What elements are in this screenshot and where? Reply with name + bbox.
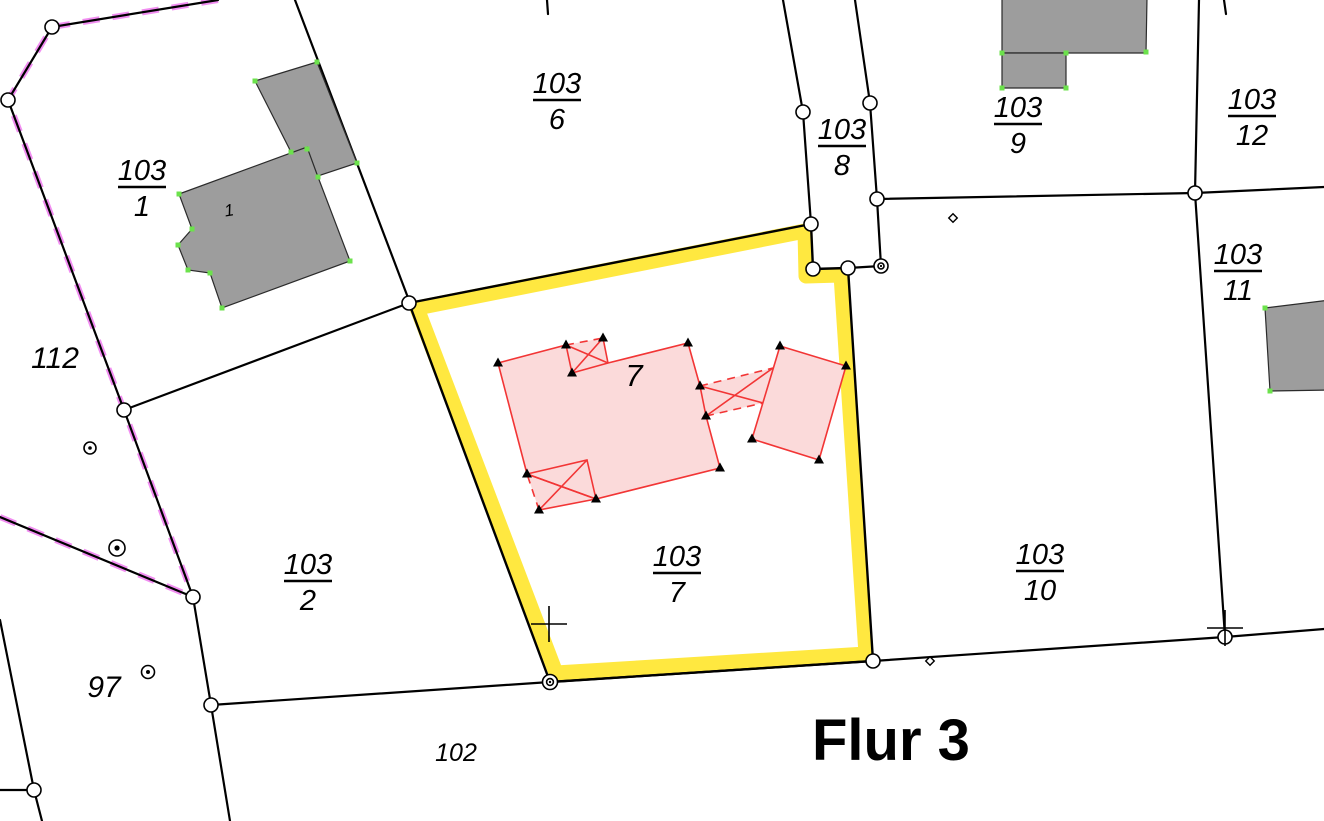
cadastral-map-canvas[interactable]: 103 1 103 6 103 8 103 9 103 12 103 11 10… — [0, 0, 1324, 821]
vertex-marker — [806, 262, 820, 276]
green-dot-marker — [1263, 306, 1268, 311]
parcel-number-denominator: 8 — [834, 150, 850, 182]
boundary-line-103-1-south — [124, 303, 409, 410]
parcel-number-numerator: 103 — [1016, 539, 1064, 571]
vertex-marker — [870, 192, 884, 206]
parcel-number-denominator: 9 — [1010, 128, 1026, 160]
parcel-number-denominator: 11 — [1223, 275, 1253, 307]
vertex-marker — [27, 783, 41, 797]
green-dot-marker — [208, 271, 213, 276]
green-dot-marker — [289, 150, 294, 155]
building-103-11 — [1265, 300, 1324, 391]
vertex-marker — [796, 105, 810, 119]
parcel-number-numerator: 103 — [118, 155, 166, 187]
green-dot-marker — [1000, 86, 1005, 91]
green-dot-marker — [355, 161, 360, 166]
parcel-label-103-9: 103 9 — [994, 92, 1042, 160]
parcel-label-103-12: 103 12 — [1228, 84, 1276, 152]
parcel-label-102: 102 — [435, 739, 477, 767]
green-dot-marker — [1064, 51, 1069, 56]
parcel-label-103-6: 103 6 — [533, 68, 581, 136]
green-dot-marker — [316, 175, 321, 180]
vertex-marker — [866, 654, 880, 668]
cross-marker — [1207, 610, 1243, 646]
parcel-label-103-11: 103 11 — [1214, 239, 1262, 307]
parcel-number-denominator: 6 — [549, 104, 566, 136]
parcel-label-103-1: 103 1 — [118, 155, 166, 223]
green-dot-marker — [1064, 86, 1069, 91]
house-number-7: 7 — [625, 358, 644, 393]
vertex-marker — [186, 590, 200, 604]
parcel-label-103-8: 103 8 — [818, 114, 866, 182]
green-dot-marker — [186, 268, 191, 273]
parcel-label-97: 97 — [87, 671, 122, 704]
parcel-number-numerator: 103 — [1214, 239, 1262, 271]
green-dot-marker — [1000, 51, 1005, 56]
parcel-number-denominator: 7 — [669, 577, 687, 609]
vertex-marker — [1188, 186, 1202, 200]
boundary-line-103-9-south — [877, 187, 1324, 199]
vertex-marker — [804, 217, 818, 231]
parcel-number-numerator: 103 — [994, 92, 1042, 124]
diamond-marker — [949, 214, 957, 222]
vertex-marker — [45, 20, 59, 34]
edited-boundary-purple-dashes — [0, 0, 218, 597]
parcel-number-denominator: 12 — [1236, 120, 1268, 152]
circled-dot-marker — [543, 675, 558, 690]
green-dot-marker — [1268, 389, 1273, 394]
green-dot-marker — [176, 243, 181, 248]
parcel-label-112: 112 — [31, 342, 79, 375]
parcel-number-numerator: 103 — [653, 541, 701, 573]
green-dot-marker — [220, 306, 225, 311]
minor-point-markers — [926, 214, 957, 665]
vertex-marker — [204, 698, 218, 712]
circled-dot-marker — [84, 442, 96, 454]
vertex-marker — [402, 296, 416, 310]
green-dot-marker — [253, 79, 258, 84]
parcel-number-numerator: 103 — [818, 114, 866, 146]
vertex-marker — [1, 93, 15, 107]
parcel-number-numerator: 103 — [533, 68, 581, 100]
green-dot-marker — [348, 259, 353, 264]
circled-dot-marker — [109, 540, 125, 556]
parcel-number-numerator: 103 — [284, 549, 332, 581]
boundary-tick-top — [547, 0, 548, 14]
green-dot-marker — [190, 227, 195, 232]
green-dot-marker — [1144, 50, 1149, 55]
building-103-9-main — [1002, 0, 1147, 53]
parcel-number-denominator: 1 — [134, 191, 150, 223]
boundary-tick-top-right — [1224, 0, 1226, 14]
parcel-number-denominator: 2 — [299, 585, 316, 617]
flur-title: Flur 3 — [812, 708, 970, 773]
parcel-number-denominator: 10 — [1024, 575, 1056, 607]
vertex-marker — [863, 96, 877, 110]
boundary-line-103-11-west — [1195, 0, 1225, 637]
vertex-marker — [117, 403, 131, 417]
parcel-label-103-10: 103 10 — [1016, 539, 1064, 607]
green-dot-marker — [177, 192, 182, 197]
building-103-9-annex — [1002, 53, 1066, 88]
vertex-marker — [841, 261, 855, 275]
parcel-number-numerator: 103 — [1228, 84, 1276, 116]
circled-dot-marker — [874, 259, 888, 273]
green-dot-marker — [315, 60, 320, 65]
green-dot-marker — [305, 147, 310, 152]
boundary-line-west — [8, 0, 218, 597]
circled-dot-marker — [142, 666, 155, 679]
parcel-label-103-2: 103 2 — [284, 549, 332, 617]
